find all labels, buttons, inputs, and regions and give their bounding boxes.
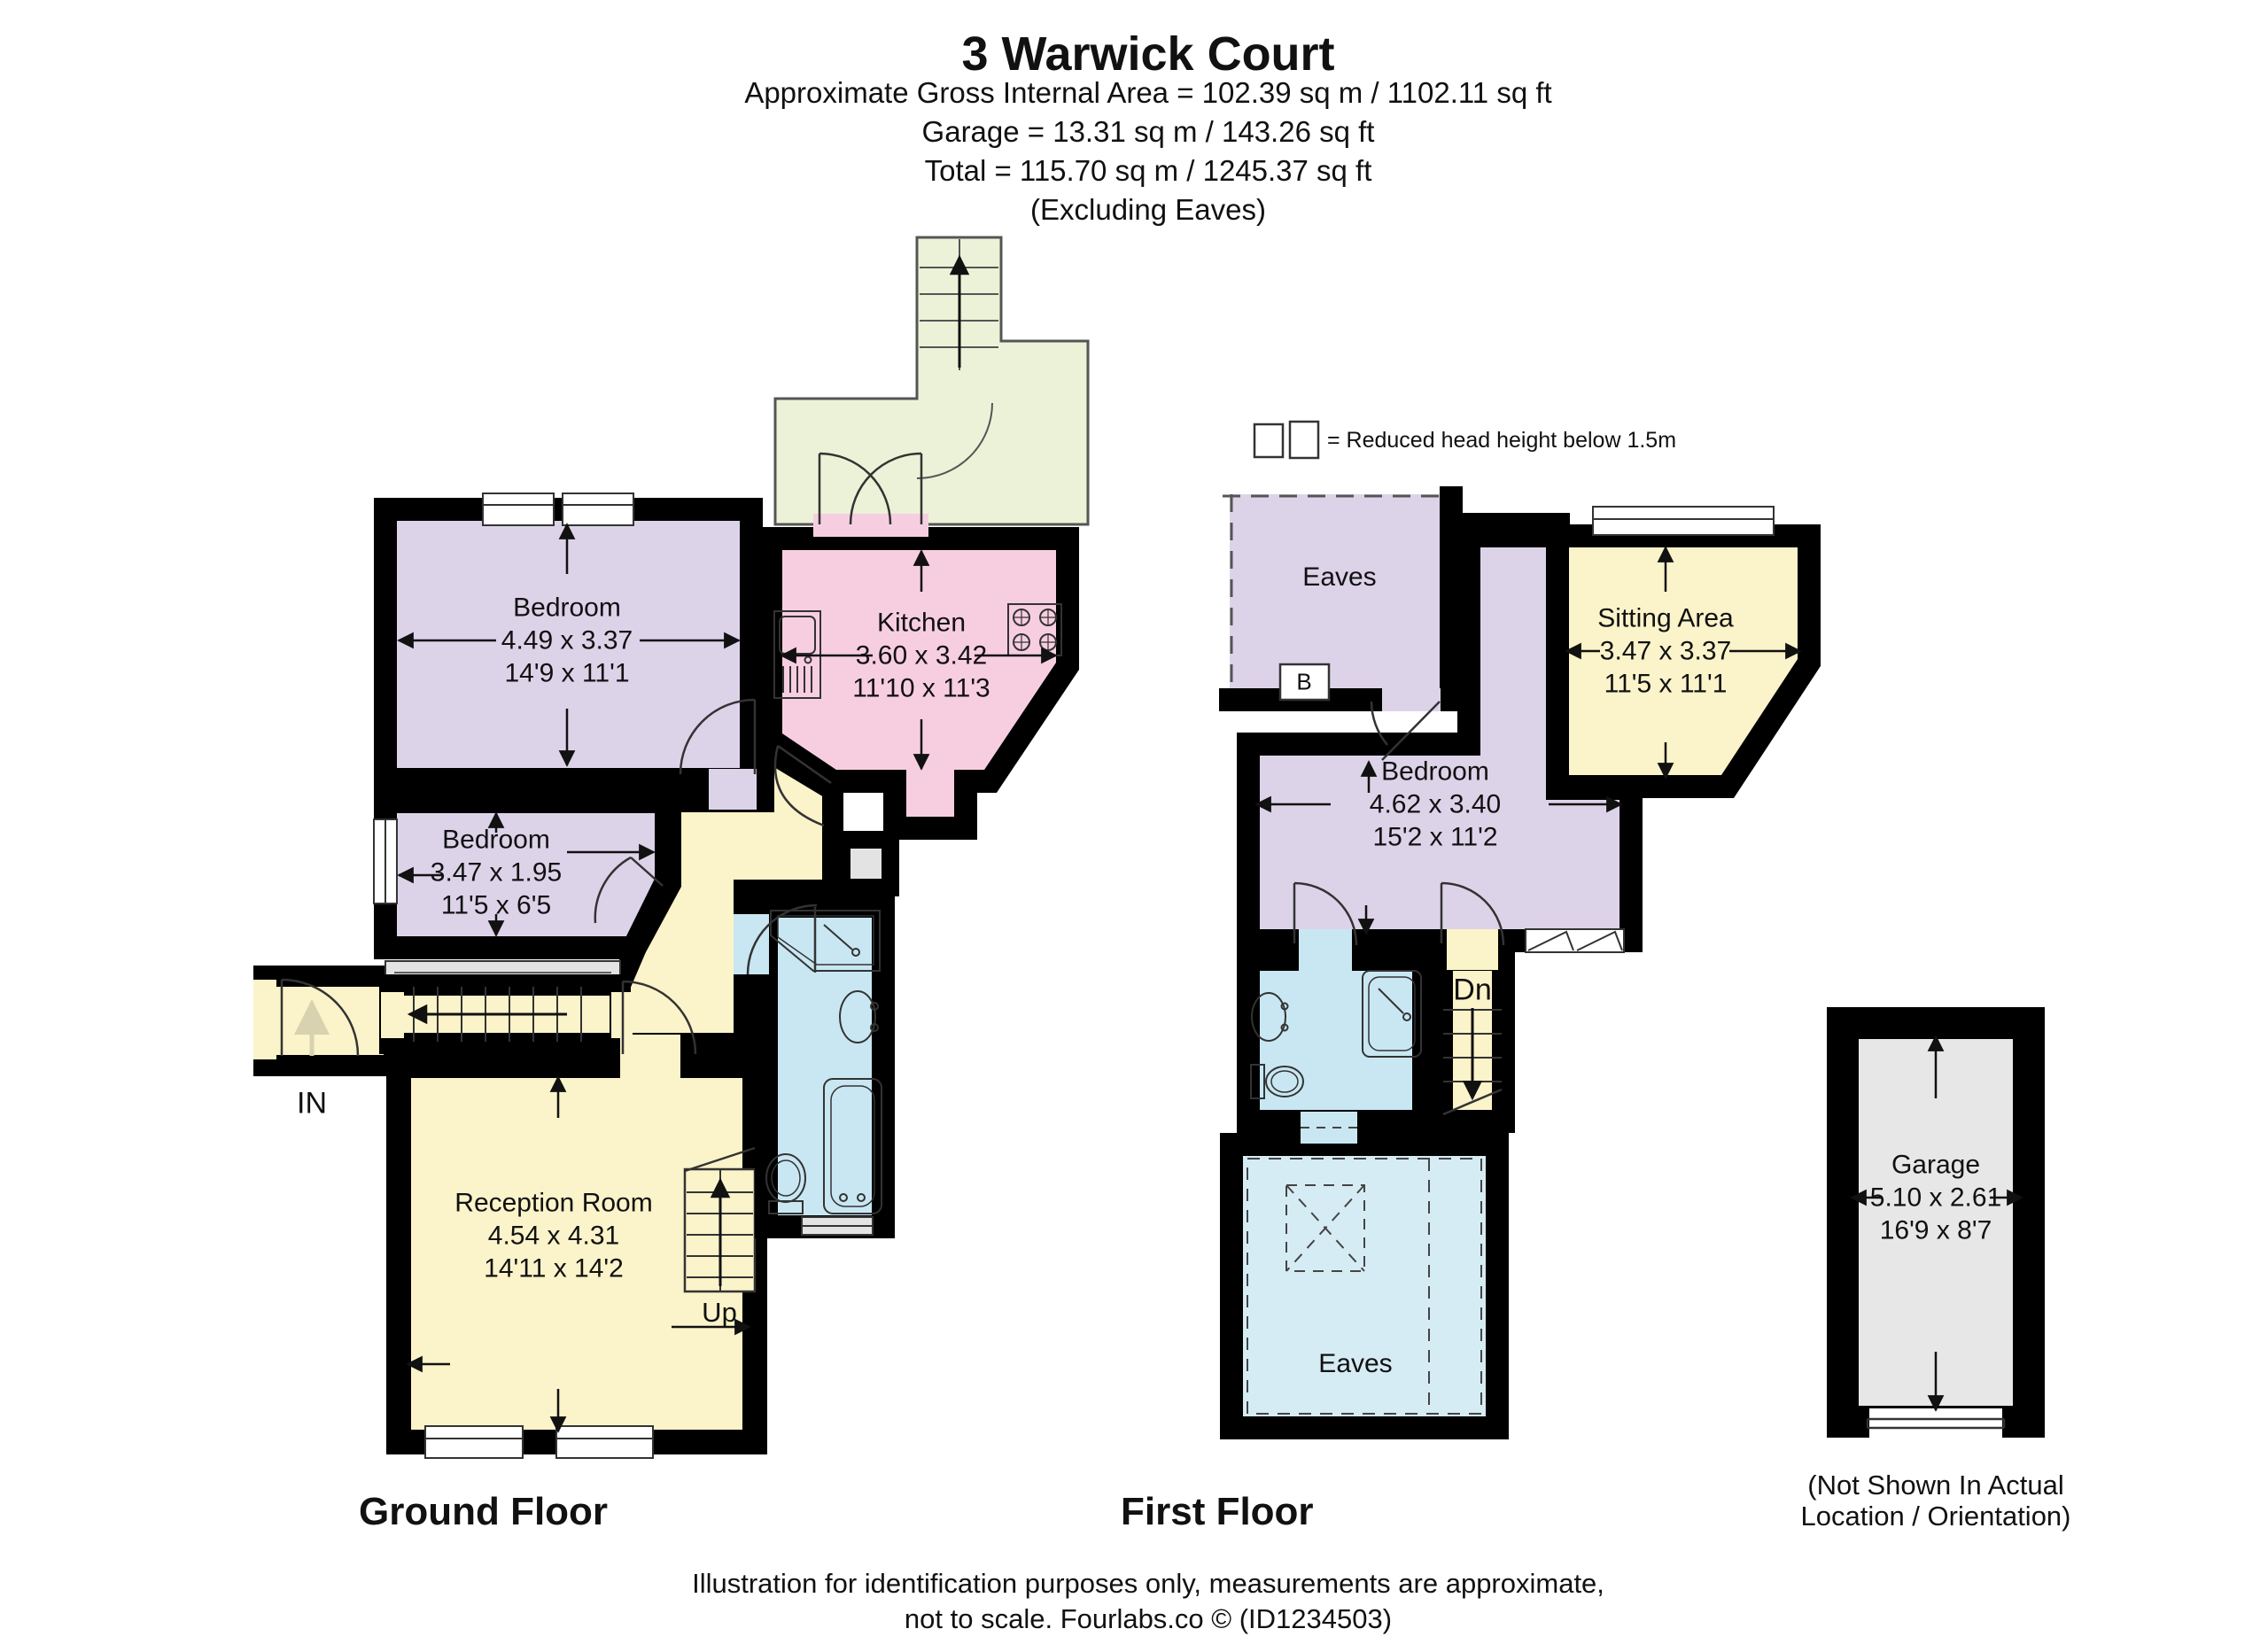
garage-door-opening: [1869, 1408, 2002, 1440]
page-title: 3 Warwick Court: [961, 27, 1334, 81]
in-label: IN: [297, 1087, 327, 1121]
first-sitting-area-label: Sitting Area 3.47 x 3.37 11'5 x 11'1: [1597, 602, 1733, 701]
ground-reception-label: Reception Room 4.54 x 4.31 14'11 x 14'2: [454, 1187, 652, 1285]
excluding-eaves-line: (Excluding Eaves): [1030, 193, 1266, 227]
reception-up-stairs: [685, 1148, 755, 1291]
legend-label: = Reduced head height below 1.5m: [1327, 428, 1676, 454]
ground-floor-title: Ground Floor: [359, 1490, 608, 1534]
floorplan-drawing: [0, 0, 2268, 1652]
footer-disclaimer-line1: Illustration for identification purposes…: [692, 1568, 1604, 1600]
legend-symbol: [1254, 422, 1318, 458]
floorplan-page: 3 Warwick Court Approximate Gross Intern…: [0, 0, 2268, 1652]
first-bathroom: [1248, 959, 1424, 1121]
ground-kitchen-label: Kitchen 3.60 x 3.42 11'10 x 11'3: [852, 607, 990, 705]
boiler-label: B: [1296, 669, 1311, 696]
ground-floor-plan: [253, 237, 1088, 1458]
ground-bedroom2-label: Bedroom 3.47 x 1.95 11'5 x 6'5: [431, 824, 562, 922]
total-area-line: Total = 115.70 sq m / 1245.37 sq ft: [925, 154, 1372, 188]
garage-area-line: Garage = 13.31 sq m / 143.26 sq ft: [922, 115, 1375, 149]
ground-cupboard: [842, 840, 890, 888]
first-eaves-top-room: [1230, 494, 1446, 700]
footer-disclaimer-line2: not to scale. Fourlabs.co © (ID1234503): [905, 1603, 1392, 1635]
first-eaves-bottom-label: Eaves: [1318, 1349, 1392, 1379]
gross-internal-area-line: Approximate Gross Internal Area = 102.39…: [744, 76, 1551, 110]
ground-entrance-lobby: [264, 976, 394, 1066]
first-bedroom-label: Bedroom 4.62 x 3.40 15'2 x 11'2: [1370, 756, 1501, 854]
up-label: Up: [702, 1297, 737, 1329]
first-eaves-top-label: Eaves: [1302, 562, 1376, 593]
ground-bedroom1-label: Bedroom 4.49 x 3.37 14'9 x 11'1: [501, 592, 633, 690]
garage-label: Garage 5.10 x 2.61 16'9 x 8'7: [1870, 1149, 2001, 1247]
garage-note-line2: Location / Orientation): [1800, 1501, 2070, 1532]
garage-note-line1: (Not Shown In Actual: [1807, 1470, 2064, 1501]
dn-label: Dn: [1453, 973, 1491, 1008]
terrace-outdoor-stair: [775, 237, 1088, 524]
first-floor-title: First Floor: [1121, 1490, 1314, 1534]
